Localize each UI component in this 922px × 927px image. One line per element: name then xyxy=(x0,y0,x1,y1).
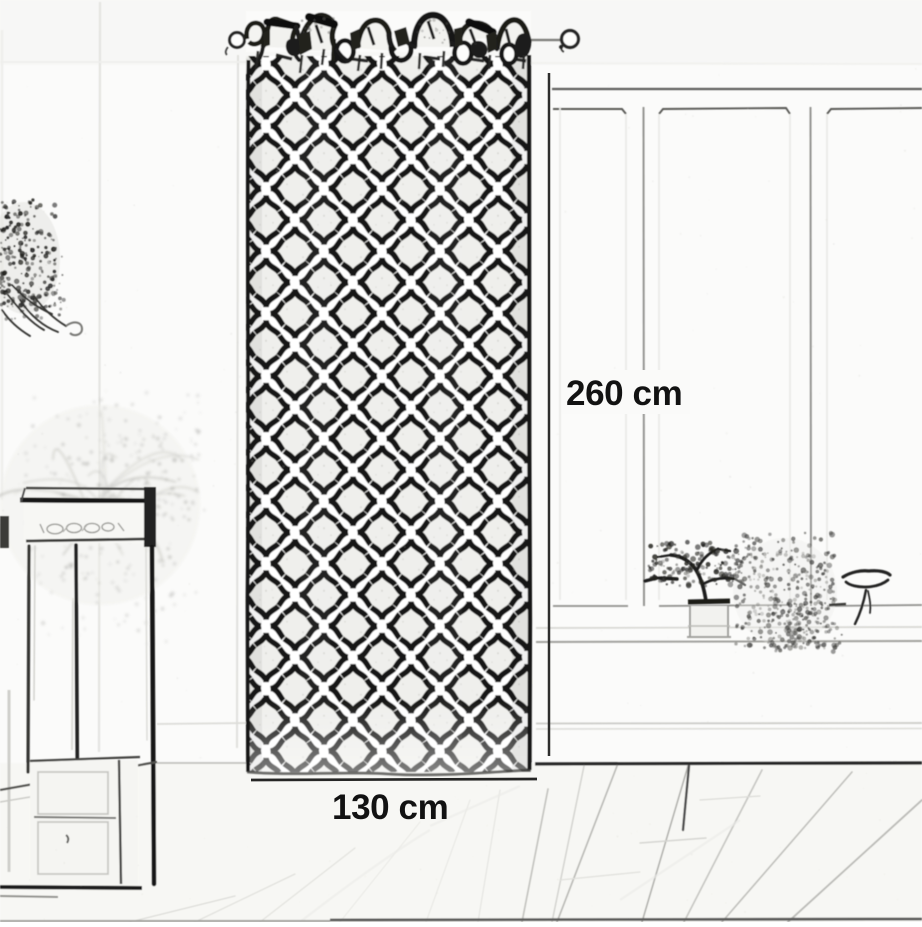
svg-text:130 cm: 130 cm xyxy=(332,788,448,827)
svg-text:260 cm: 260 cm xyxy=(566,374,682,413)
